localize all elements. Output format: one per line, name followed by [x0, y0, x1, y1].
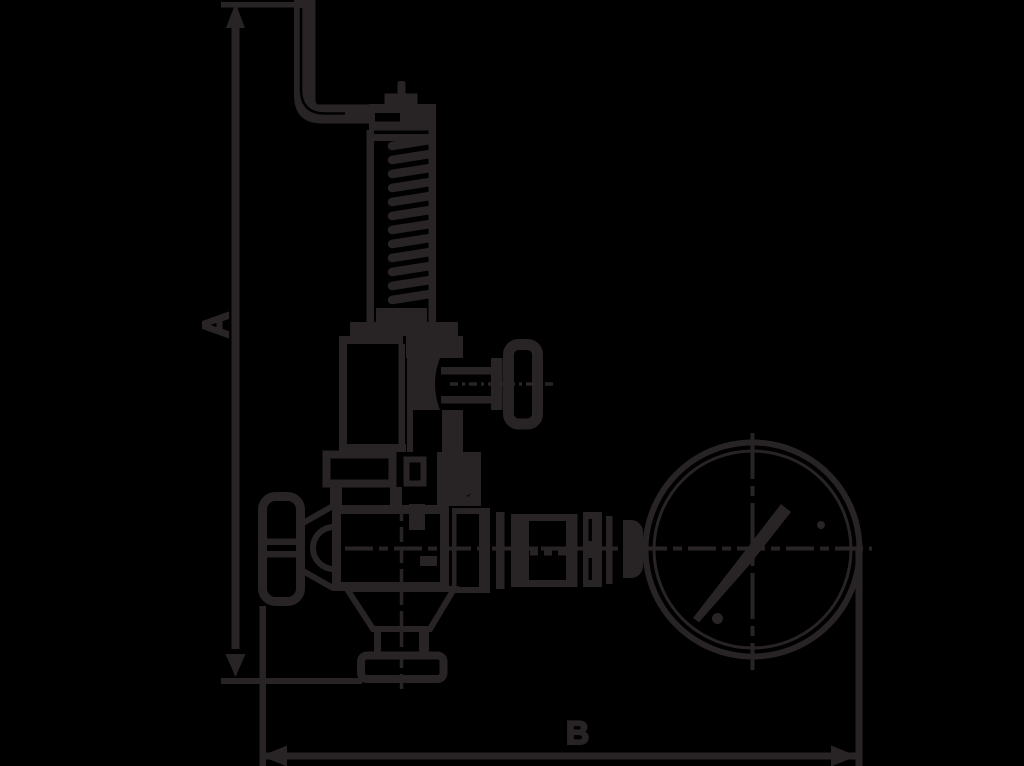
- svg-text:B: B: [566, 715, 589, 751]
- svg-text:A: A: [195, 312, 236, 338]
